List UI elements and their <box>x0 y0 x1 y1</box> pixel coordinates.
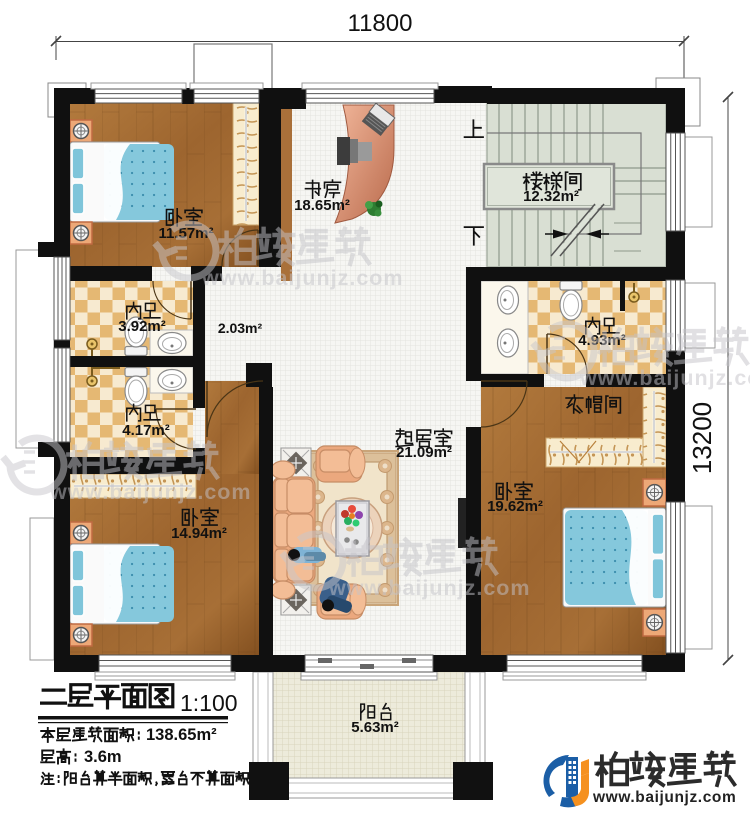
svg-text:21.09m²: 21.09m² <box>396 444 452 461</box>
svg-text:13200: 13200 <box>687 402 717 474</box>
svg-text:4.17m²: 4.17m² <box>122 422 170 439</box>
svg-text:5.63m²: 5.63m² <box>351 719 399 736</box>
svg-text:19.62m²: 19.62m² <box>487 498 543 515</box>
svg-text:1:100: 1:100 <box>180 690 238 716</box>
svg-text:www.baijunjz.com: www.baijunjz.com <box>328 576 531 600</box>
svg-text:3.6m: 3.6m <box>84 748 122 766</box>
svg-text:138.65m²: 138.65m² <box>146 726 217 744</box>
svg-text:www.baijunjz.com: www.baijunjz.com <box>49 480 252 504</box>
svg-text:www.baijunjz.com: www.baijunjz.com <box>201 266 404 290</box>
svg-text:14.94m²: 14.94m² <box>171 525 227 542</box>
svg-text:11800: 11800 <box>348 10 413 37</box>
svg-text:www.baijunjz.com: www.baijunjz.com <box>579 366 750 390</box>
svg-text:2.03m²: 2.03m² <box>218 320 263 336</box>
svg-text:3.92m²: 3.92m² <box>118 318 166 335</box>
svg-text:www.baijunjz.com: www.baijunjz.com <box>592 789 736 806</box>
svg-text:18.65m²: 18.65m² <box>294 197 350 214</box>
svg-text:12.32m²: 12.32m² <box>523 188 579 205</box>
